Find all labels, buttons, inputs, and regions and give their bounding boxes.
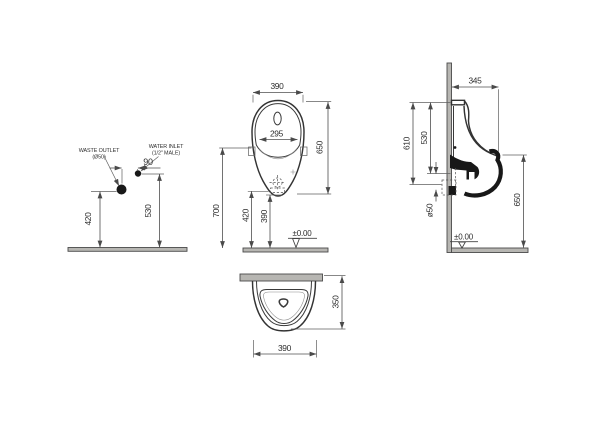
waste-outlet-point [117, 185, 127, 195]
section-trap [450, 155, 479, 180]
water-inlet-size-label: (1/2" MALE) [152, 151, 180, 157]
top-view: 350 390 [240, 274, 346, 358]
dim-bottom-clearance: 390 [259, 209, 269, 223]
spreader-hole [274, 112, 281, 125]
datum-triangle [459, 242, 466, 248]
dim-waste-height: 420 [83, 212, 93, 226]
floor-bar [452, 248, 529, 253]
datum-label: ±0.00 [454, 233, 474, 242]
drain-hole [279, 299, 288, 307]
installation-view: WASTE OUTLET (Ø50) WATER INLET (1/2" MAL… [68, 144, 187, 251]
dim-mount-height: 700 [211, 204, 221, 218]
water-inlet-label: WATER INLET [149, 144, 184, 150]
dim-outlet-height: 420 [241, 208, 251, 222]
water-inlet-point [135, 170, 141, 176]
dim-waste-pipe: ø50 [425, 203, 435, 217]
urinal-dimension-drawing: WASTE OUTLET (Ø50) WATER INLET (1/2" MAL… [0, 0, 600, 424]
technical-drawing-sheet: WASTE OUTLET (Ø50) WATER INLET (1/2" MAL… [0, 0, 600, 424]
dim-spacing: 90 [143, 157, 153, 167]
dim-bowl-width: 295 [270, 128, 284, 138]
body-inner-line [257, 281, 312, 326]
dim-depth: 345 [468, 75, 482, 85]
dim-height: 650 [315, 140, 325, 154]
dim-upper: 610 [402, 136, 412, 150]
bowl-opening-curve [256, 145, 299, 157]
dim-depth: 350 [331, 295, 341, 309]
datum-label: ±0.00 [293, 229, 313, 238]
outlet-block [449, 186, 457, 195]
dim-width: 390 [278, 343, 292, 353]
trap-channel [469, 172, 475, 180]
center-mark [291, 170, 296, 175]
mounting-cap [452, 100, 465, 105]
dim-lower: 530 [419, 131, 429, 145]
waste-outlet-diameter-label: (Ø50) [92, 155, 106, 161]
floor-bar [68, 248, 187, 252]
floor-bar [243, 248, 328, 252]
waste-leader-arrow [104, 156, 119, 186]
dim-width: 390 [270, 81, 284, 91]
waste-outlet-label: WASTE OUTLET [79, 148, 120, 154]
datum-triangle [293, 239, 300, 248]
urinal-body-outline [252, 101, 304, 197]
rim-inner-line [255, 104, 301, 145]
fixing-dot [454, 146, 457, 149]
front-view: 390 295 650 700 420 390 ±0.00 [211, 81, 331, 252]
wall-bar [240, 274, 323, 281]
side-view: 345 610 530 ø50 650 ±0.00 [402, 63, 529, 253]
dim-spout-height: 650 [512, 193, 522, 207]
dim-inlet-height: 530 [143, 204, 153, 218]
